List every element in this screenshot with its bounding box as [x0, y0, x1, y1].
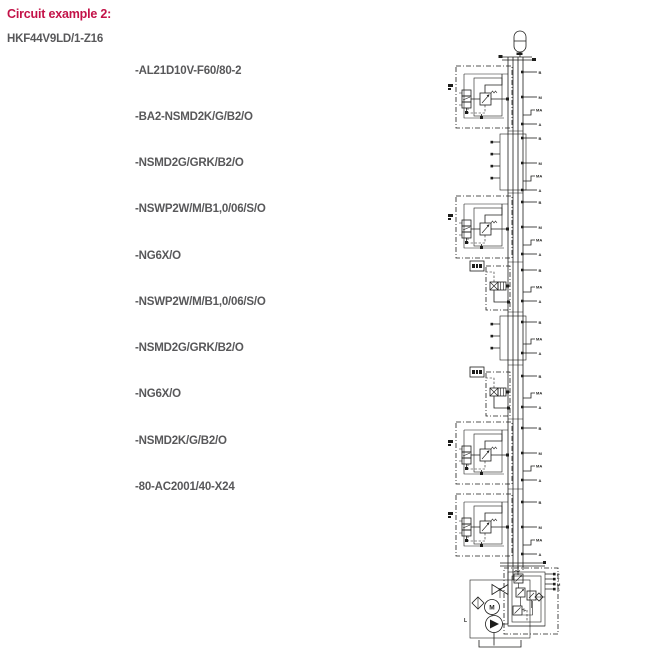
- motor-symbol: M: [485, 600, 500, 615]
- station-2-ports: [521, 136, 543, 193]
- valve-station-4: [484, 266, 510, 310]
- power-unit: P T M S: [464, 561, 561, 647]
- station-7-ports: [521, 426, 543, 483]
- tank-symbol: [479, 640, 521, 647]
- motor-label: M: [489, 605, 494, 612]
- station-4-ports: [521, 268, 542, 304]
- pump-symbol: [486, 616, 503, 633]
- valve-station-7: [448, 422, 512, 484]
- pressure-valve-symbol: [516, 588, 525, 597]
- power-unit-ports: P T M S: [545, 572, 561, 592]
- station-3-ports: [521, 200, 543, 257]
- port-label: S: [557, 587, 560, 592]
- valve-station-1: [448, 66, 512, 128]
- station-8-ports: [521, 500, 543, 557]
- cooler-fan-symbol: [492, 585, 508, 599]
- hydraulic-circuit-diagram: B M MA A B MA A: [0, 0, 670, 651]
- valve-station-6: [484, 372, 510, 416]
- relief-valve-symbol: [514, 571, 523, 584]
- page: { "page": { "title": "Circuit example 2:…: [0, 0, 670, 651]
- station-6-solenoid-box: [470, 367, 484, 377]
- relief-valve-symbol: [513, 606, 526, 615]
- port-label: L: [464, 618, 467, 624]
- station-6-ports: [521, 374, 542, 410]
- valve-station-8: [448, 494, 512, 556]
- manifold-lines: [508, 57, 523, 568]
- station-5-ports: [521, 320, 542, 356]
- filter-symbol: [472, 597, 484, 609]
- valve-station-3: [448, 196, 512, 258]
- accumulator-symbol: [514, 31, 526, 57]
- station-1-ports: [521, 70, 543, 127]
- pressure-valve-symbol: [527, 591, 536, 600]
- station-4-solenoid-box: [470, 261, 484, 271]
- manifold-top: [499, 55, 537, 61]
